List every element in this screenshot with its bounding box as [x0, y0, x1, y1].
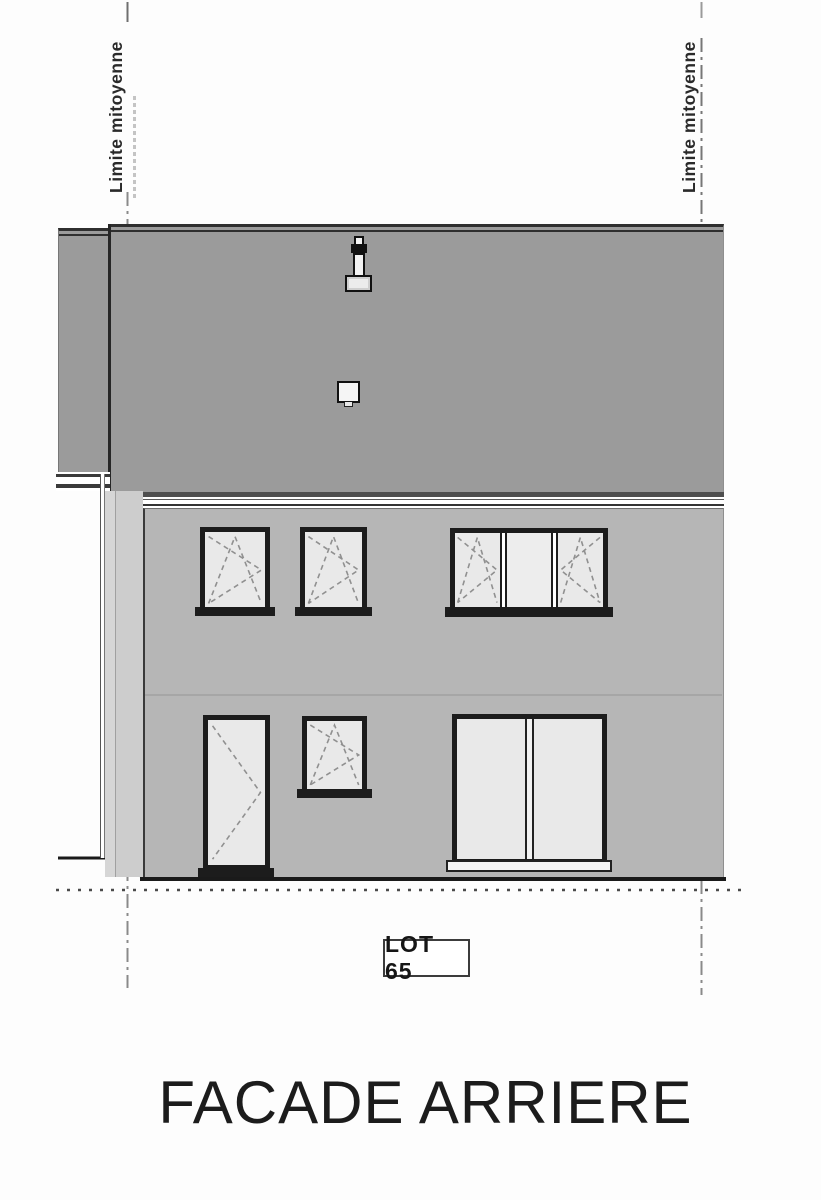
- roof-vent: [337, 381, 360, 403]
- opening-direction-dashes: [558, 533, 603, 607]
- upper-window-1-sill: [195, 607, 275, 616]
- floor-separation-line: [145, 694, 722, 696]
- faded-annotation-text: [133, 96, 136, 198]
- lot-label: LOT 65: [385, 931, 468, 985]
- large-pane-right: [534, 719, 602, 859]
- flue-base-box: [345, 275, 372, 292]
- main-roof: [110, 224, 724, 492]
- opening-direction-dashes: [305, 532, 362, 608]
- triple-pane-center-fixed: [507, 533, 552, 607]
- neighbor-ridge-line: [59, 234, 110, 236]
- boundary-label-left: Limite mitoyenne: [106, 41, 127, 193]
- opening-direction-dashes: [307, 721, 362, 789]
- lower-small-window: [302, 716, 367, 794]
- large-window-mullion: [525, 719, 534, 859]
- roof-party-separation-line: [108, 224, 111, 508]
- door-threshold: [198, 868, 274, 877]
- triple-window-mullion: [500, 533, 507, 607]
- triple-pane-right: [558, 533, 603, 607]
- lower-large-window-sill: [446, 860, 612, 872]
- lower-small-window-sill: [297, 789, 372, 798]
- upper-triple-window: [450, 528, 608, 612]
- boundary-label-right: Limite mitoyenne: [679, 41, 700, 193]
- glazed-door: [203, 715, 270, 870]
- opening-direction-dashes: [208, 720, 265, 865]
- triple-window-mullion: [551, 533, 558, 607]
- flue-collar: [351, 244, 367, 253]
- wall-base-line: [140, 877, 726, 881]
- upper-window-2: [300, 527, 367, 613]
- large-window-panes: [457, 719, 602, 859]
- triple-window-panes: [455, 533, 603, 607]
- upper-triple-window-sill: [445, 607, 613, 617]
- flue-pipe: [353, 253, 365, 277]
- roof-vent-tab: [344, 402, 353, 407]
- page-title: FACADE ARRIERE: [30, 1068, 821, 1137]
- upper-window-2-sill: [295, 607, 372, 616]
- opening-direction-dashes: [455, 533, 500, 607]
- neighbor-roof: [58, 228, 110, 472]
- opening-direction-dashes: [205, 532, 265, 608]
- elevation-drawing-page: Limite mitoyenne Limite mitoyenne: [0, 0, 821, 1200]
- main-eave-fascia: [110, 497, 724, 508]
- lot-label-box: LOT 65: [383, 939, 470, 977]
- triple-pane-left: [455, 533, 500, 607]
- lower-large-window: [452, 714, 607, 864]
- large-pane-left: [457, 719, 525, 859]
- main-ridge-line: [110, 230, 723, 232]
- side-return-wall: [105, 491, 143, 877]
- upper-window-1: [200, 527, 270, 613]
